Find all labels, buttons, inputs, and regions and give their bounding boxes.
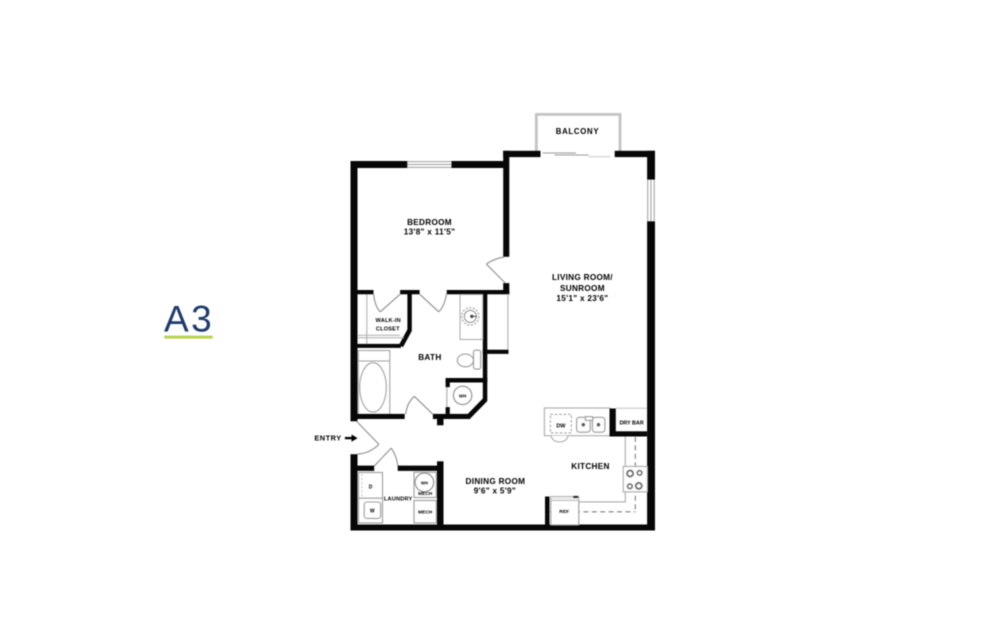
svg-text:9'6" x 5'9": 9'6" x 5'9": [474, 487, 516, 496]
svg-text:WH: WH: [459, 393, 466, 398]
svg-text:LAUNDRY: LAUNDRY: [384, 496, 413, 502]
svg-text:A3: A3: [164, 299, 214, 340]
svg-text:DW: DW: [556, 424, 566, 430]
svg-text:CLOSET: CLOSET: [376, 327, 400, 333]
svg-text:MECH: MECH: [418, 491, 433, 497]
svg-text:W: W: [370, 508, 375, 514]
svg-text:LIVING ROOM/: LIVING ROOM/: [552, 273, 613, 282]
svg-text:15'1" x 23'6": 15'1" x 23'6": [556, 294, 608, 303]
svg-text:BATH: BATH: [418, 353, 441, 362]
svg-text:DINING ROOM: DINING ROOM: [466, 477, 526, 486]
svg-text:WALK-IN: WALK-IN: [376, 318, 401, 324]
svg-text:BALCONY: BALCONY: [556, 127, 600, 136]
svg-text:DRY BAR: DRY BAR: [619, 420, 643, 426]
svg-text:D: D: [369, 484, 373, 490]
svg-text:13'8" x 11'5": 13'8" x 11'5": [404, 227, 456, 236]
svg-text:BEDROOM: BEDROOM: [407, 218, 452, 227]
svg-text:MECH: MECH: [418, 509, 433, 515]
svg-text:KITCHEN: KITCHEN: [571, 462, 610, 471]
svg-text:ENTRY: ENTRY: [314, 434, 341, 443]
svg-text:WH: WH: [421, 480, 428, 485]
svg-text:SUNROOM: SUNROOM: [560, 284, 605, 293]
svg-text:REF: REF: [559, 509, 569, 515]
